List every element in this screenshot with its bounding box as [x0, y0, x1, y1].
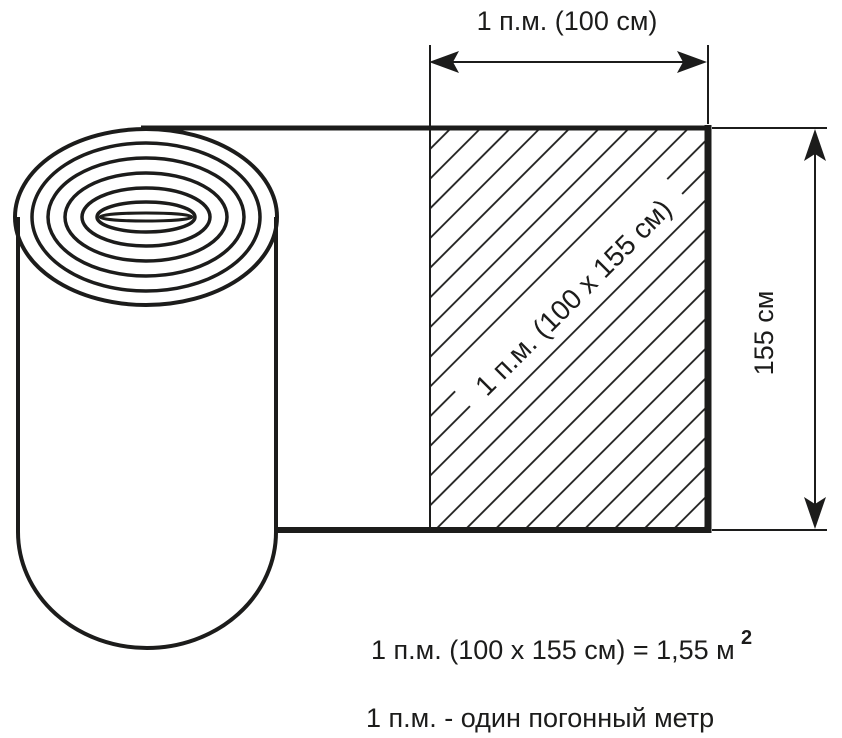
formula-text: 1 п.м. (100 х 155 см) = 1,55 м	[371, 635, 735, 665]
roll-ring-outer	[15, 129, 277, 305]
legend-text: 1 п.м. - один погонный метр	[366, 703, 714, 733]
linear-meter-diagram: 1 п.м. (100 х 155 см) 1 п.м.	[0, 0, 842, 738]
roll-core-lens	[100, 213, 192, 221]
diagram-canvas: 1 п.м. (100 х 155 см) 1 п.м.	[0, 0, 842, 738]
unrolled-sheet: 1 п.м. (100 х 155 см)	[141, 125, 711, 533]
formula-caption: 1 п.м. (100 х 155 см) = 1,55 м 2	[371, 627, 752, 665]
formula-exponent: 2	[741, 627, 752, 649]
fabric-roll	[15, 129, 277, 648]
width-dimension: 1 п.м. (100 см)	[429, 6, 708, 126]
roll-ring	[65, 173, 227, 261]
roll-ring	[97, 202, 195, 232]
roll-ring	[48, 158, 244, 276]
side-dimension-label: 155 см	[749, 291, 779, 376]
height-dimension: 155 см	[712, 128, 827, 530]
top-dimension-label: 1 п.м. (100 см)	[477, 6, 658, 36]
